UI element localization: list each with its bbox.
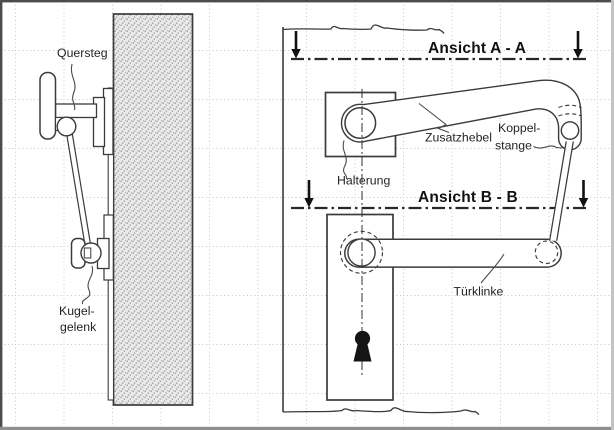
background-grid [2, 2, 611, 426]
kugelgelenk-upper [57, 117, 76, 136]
lower-joint-bracket [84, 248, 91, 258]
drawing-canvas: Quersteg Kugel- gelenk Ansicht A - A [0, 0, 614, 430]
label-kugelgelenk-line1: Kugel- [59, 304, 95, 318]
handle-grip-side [40, 73, 56, 140]
label-koppelstange-line1: Koppel- [498, 121, 540, 135]
door-section-hatch [114, 14, 193, 405]
drawing-page: Quersteg Kugel- gelenk Ansicht A - A [0, 0, 614, 430]
label-halterung: Halterung [337, 174, 390, 188]
label-kugelgelenk-line2: gelenk [60, 320, 97, 334]
tuerklinke-handle [345, 239, 561, 267]
quersteg-crossbar [56, 104, 97, 118]
label-tuerklinke: Türklinke [454, 285, 504, 299]
section-title-b-b: Ansicht B - B [418, 189, 518, 206]
label-koppelstange-line2: stange [495, 139, 532, 153]
label-quersteg: Quersteg [57, 46, 108, 60]
joint-circle [561, 122, 578, 139]
section-title-a-a: Ansicht A - A [428, 40, 526, 57]
label-zusatzhebel: Zusatzhebel [425, 131, 492, 145]
pivot-circle [345, 108, 376, 139]
